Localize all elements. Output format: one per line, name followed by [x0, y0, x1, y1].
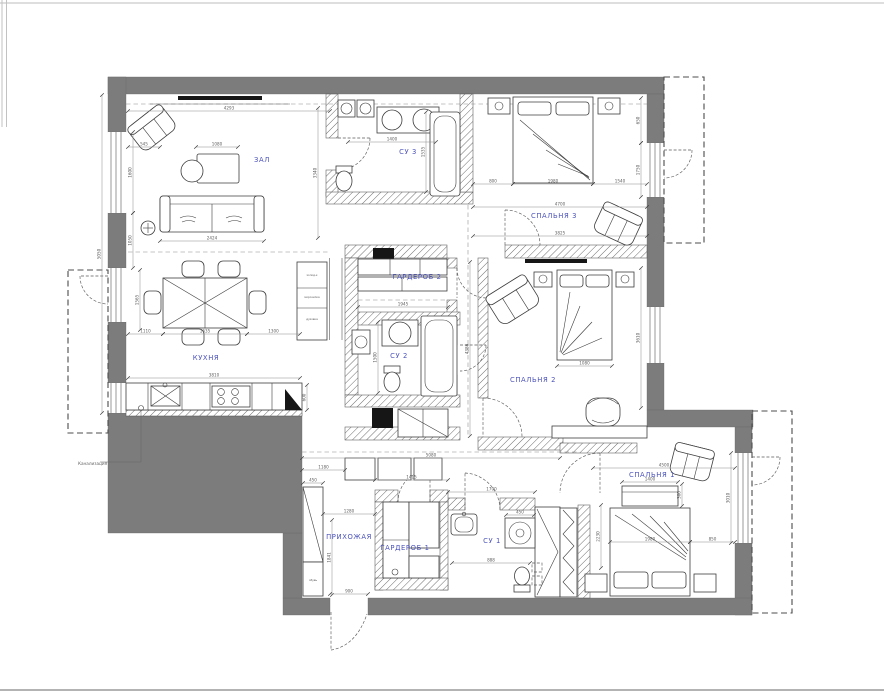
dimension: 1180 — [300, 465, 347, 472]
wardrobe-column — [535, 507, 577, 597]
door-bedroom1 — [560, 453, 600, 493]
room-label-kuhnya: КУХНЯ — [193, 354, 219, 362]
window-bedroom1 — [735, 453, 752, 543]
nightstand — [694, 574, 716, 592]
dimension: 3010 — [725, 451, 732, 545]
dimension: 1600 — [127, 130, 134, 215]
sink — [382, 110, 402, 130]
dimension-label: 650 — [635, 116, 640, 124]
toilet2 — [384, 366, 400, 392]
room-label-su3: СУ 3 — [399, 148, 417, 156]
floor-plan-svg: Канализация холод-к морозилка духовка об… — [0, 0, 884, 699]
vent-shaft-bottom — [372, 408, 393, 428]
furniture-kitchen — [126, 261, 327, 411]
dining-table — [163, 278, 247, 328]
dimension: 2424 — [158, 236, 266, 243]
dimension-label: 1110 — [140, 329, 151, 334]
bathtub — [430, 112, 460, 196]
dimension-label: 1280 — [344, 509, 355, 514]
dimension-label: 1540 — [615, 179, 626, 184]
dimension-label: 600 — [301, 393, 306, 401]
dimension-label: 300 — [676, 491, 681, 499]
dimension: 2230 — [595, 503, 602, 570]
dimension-label: 1980 — [548, 179, 559, 184]
dimension-label: 4500 — [659, 463, 670, 468]
dimension-label: 4293 — [224, 106, 235, 111]
dryer — [357, 100, 374, 117]
dimension: 1945 — [356, 302, 450, 309]
dimension: 1050 — [127, 211, 134, 270]
dimension-label: 1980 — [645, 537, 656, 542]
dimension-label: 450 — [309, 478, 317, 483]
dimension-label: 1635 — [200, 329, 211, 334]
chair — [144, 291, 161, 314]
cabinet-label-oven: духовка — [306, 317, 318, 321]
balcony-bottom-right — [752, 411, 792, 613]
window-kitchen — [108, 383, 126, 413]
side-table — [181, 160, 203, 182]
dimension: 1080 — [194, 142, 240, 149]
dimension-label: 1535 — [420, 146, 425, 157]
room-label-zal: ЗАЛ — [254, 156, 270, 164]
dimension-label: 850 — [709, 537, 717, 542]
furniture-garderob1 — [383, 502, 439, 578]
nightstand — [585, 574, 607, 592]
nightstand — [616, 272, 634, 287]
dimension: 4500 — [591, 463, 737, 470]
washer — [338, 100, 355, 117]
dimension-label: 1050 — [127, 235, 132, 246]
dimension: 1280 — [321, 509, 377, 516]
room-label-su1: СУ 1 — [483, 537, 501, 545]
dimension-label: 3810 — [209, 373, 220, 378]
dimension-label: 1600 — [127, 167, 132, 178]
upper-cabinet — [414, 458, 442, 480]
dresser — [622, 486, 678, 506]
cabinet-label-freezer: морозилка — [304, 295, 320, 299]
armchair-livingroom — [126, 103, 178, 152]
dimension-label: 1415 — [406, 475, 417, 480]
desk-chair — [586, 398, 620, 426]
nightstand — [534, 272, 552, 287]
furniture-su2 — [352, 316, 457, 437]
dimension: 3340 — [312, 106, 319, 240]
nightstand — [598, 98, 620, 114]
dimension: 3810 — [126, 373, 302, 380]
dimension: 450 — [301, 478, 325, 485]
dimension: 1540 — [591, 179, 649, 186]
room-label-spalnya2: СПАЛЬНЯ 2 — [510, 376, 556, 384]
furniture-livingroom — [126, 96, 290, 235]
door-balcony-left — [80, 276, 108, 304]
furniture-su1 — [451, 512, 542, 592]
furniture-bedroom1 — [535, 442, 716, 597]
dimension: 3610 — [635, 266, 642, 410]
dimension: 1565 — [134, 268, 141, 332]
dimension-label: 1750 — [635, 164, 640, 175]
dimension-label: 4386 — [464, 343, 469, 354]
dimension: 1500 — [372, 320, 379, 395]
dimension: 4700 — [471, 202, 649, 209]
furniture-bedroom2 — [484, 270, 647, 438]
chair — [218, 261, 240, 277]
dimension-label: 450 — [516, 510, 524, 515]
chair — [218, 329, 240, 345]
dimension-label: 2230 — [595, 531, 600, 542]
dimension-label: 545 — [140, 142, 148, 147]
dimension-label: 1565 — [134, 294, 139, 305]
dimension: 888 — [450, 558, 532, 565]
dimension-label: 3010 — [725, 492, 730, 503]
dimension: 850 — [688, 537, 737, 544]
tv-livingroom — [178, 96, 262, 100]
door-su3 — [338, 138, 370, 170]
dimension-label: 5050 — [96, 248, 101, 259]
door-bedroom2 — [483, 398, 522, 437]
dimension: 450 — [504, 510, 536, 517]
tv-bedroom2 — [525, 259, 587, 263]
room-label-garderob2: ГАРДЕРОБ 2 — [392, 273, 441, 281]
washer-su1 — [505, 518, 535, 548]
bed-bedroom2 — [557, 270, 612, 360]
dimension-label: 1400 — [387, 137, 398, 142]
stove — [212, 386, 250, 407]
chair — [249, 291, 266, 314]
dimension-label: 1700 — [486, 487, 497, 492]
dimension-label: 5080 — [426, 453, 437, 458]
room-label-prihozhaya: ПРИХОЖАЯ — [326, 533, 372, 541]
dimension-label: 888 — [487, 558, 495, 563]
dimension: 900 — [328, 589, 370, 596]
dimension: 1080 — [555, 361, 614, 368]
dimension-label: 1500 — [372, 352, 377, 363]
dimension: 800 — [471, 179, 515, 186]
dimension-label: 1180 — [318, 465, 329, 470]
window-kitchen-balcony-door — [108, 268, 126, 322]
bed-bedroom3 — [513, 97, 593, 183]
balcony-top-right — [664, 77, 704, 243]
toilet — [336, 166, 352, 191]
kitchen-sink — [151, 383, 180, 406]
dimension-label: 1945 — [398, 302, 409, 307]
dimension: 650 — [635, 96, 642, 145]
dimension-label: 3610 — [635, 332, 640, 343]
bed-bedroom1 — [610, 508, 690, 596]
shoe-label: обувь — [309, 578, 317, 582]
dimension-label: 1841 — [326, 552, 331, 563]
bathtub2 — [421, 316, 457, 396]
dimension: 1700 — [446, 487, 537, 494]
coffee-table — [197, 154, 239, 183]
armchair-bedroom1 — [669, 442, 716, 483]
chair — [182, 261, 204, 277]
sink — [389, 322, 411, 344]
cabinet-label-fridge: холод-к — [306, 273, 317, 277]
dimension: 5050 — [96, 93, 103, 415]
dimension-label: 3825 — [555, 231, 566, 236]
furniture-su3 — [336, 100, 460, 196]
room-label-garderob1: ГАРДЕРОБ 1 — [380, 544, 429, 552]
room-label-su2: СУ 2 — [390, 352, 408, 360]
dimension-label: 900 — [345, 589, 353, 594]
room-label-spalnya3: СПАЛЬНЯ 3 — [531, 212, 577, 220]
floorplan-page: Канализация холод-к морозилка духовка об… — [0, 0, 884, 699]
dimension-label: 800 — [489, 179, 497, 184]
sink-su1 — [451, 512, 477, 535]
door-entrance — [331, 612, 367, 650]
dimension-label: 1080 — [579, 361, 590, 366]
dimension: 1300 — [245, 329, 302, 336]
door-balcony-bedroom3 — [664, 150, 692, 178]
armchair-bedroom2 — [484, 273, 541, 326]
window-bedroom3 — [647, 143, 664, 197]
dimension-label: 3340 — [312, 167, 317, 178]
desk — [552, 426, 647, 438]
nightstand — [488, 98, 510, 114]
dimension: 1841 — [326, 518, 333, 597]
dimension-label: 1400 — [645, 477, 656, 482]
armchair-bedroom3 — [592, 201, 644, 248]
dimension: 600 — [301, 383, 308, 412]
upper-cabinet — [345, 458, 375, 480]
dimension-label: 4700 — [555, 202, 566, 207]
dimension-label: 2424 — [207, 236, 218, 241]
dimension-label: 1300 — [268, 329, 279, 334]
hall-cabinet-row — [398, 409, 448, 437]
sewer-label: Канализация — [78, 461, 108, 466]
dimension: 1110 — [126, 329, 165, 336]
sofa — [160, 196, 264, 232]
window-bedroom2 — [647, 307, 664, 363]
door-balcony-bedroom1 — [752, 457, 780, 485]
window-livingroom — [108, 132, 126, 213]
dimension: 1750 — [635, 141, 642, 199]
dimension-label: 1080 — [212, 142, 223, 147]
